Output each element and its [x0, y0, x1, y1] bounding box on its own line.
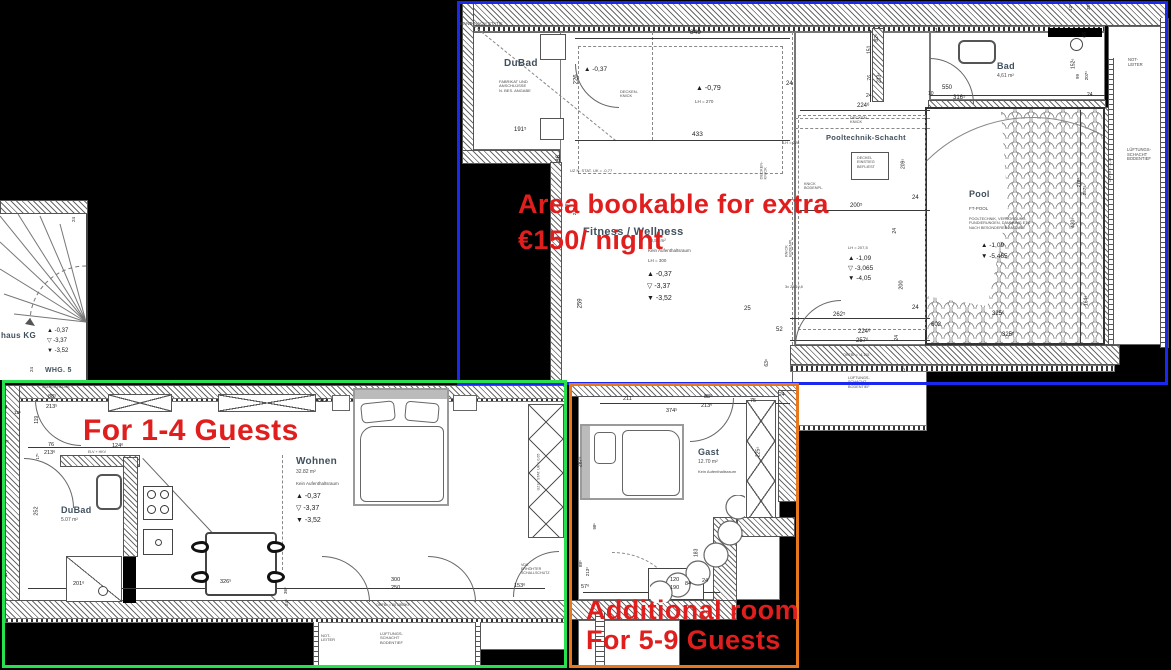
- annotation-layer: Area bookable for extra €150/ nightFor 1…: [0, 0, 1171, 670]
- bookable-note: Area bookable for extra €150/ night: [518, 186, 829, 258]
- additional-note: Additional room For 5-9 Guests: [586, 595, 799, 655]
- guests-note: For 1-4 Guests: [83, 414, 299, 448]
- floor-plan: WAND NACH STATIKDuBadFABRIKAT UND ANSCHL…: [0, 0, 1171, 670]
